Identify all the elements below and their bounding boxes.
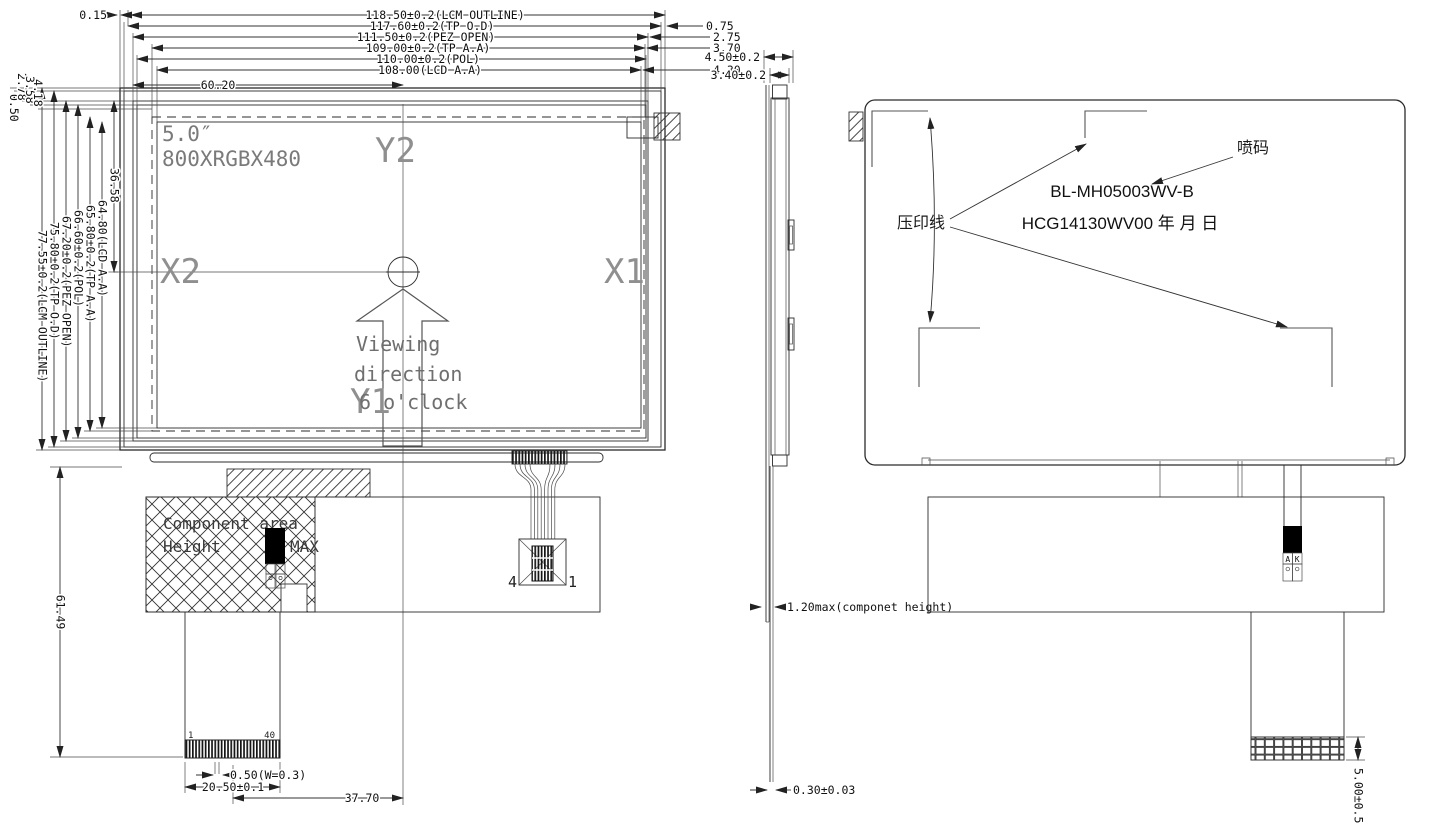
dim-lcm-height: 77.55±0.2(LCM OUTLINE) (36, 230, 50, 382)
model-number: BL-MH05003WV-B (1050, 182, 1194, 201)
ak-pin-k-hole (1295, 567, 1299, 571)
pin40-label: 40 (264, 731, 275, 741)
panel-size-label: 5.0″ (162, 122, 213, 146)
ak-pin-k (1293, 564, 1303, 581)
side-bottom-cap (773, 455, 788, 466)
side-top-cap (773, 85, 788, 99)
dim-6020: 60.20 (201, 78, 236, 92)
connector-40pin (185, 740, 280, 758)
fpc-bond-pad (512, 451, 567, 464)
dim-015: 0.15 (79, 8, 107, 22)
ak-label-a: A (1285, 555, 1290, 564)
component-area-text2a: Height (163, 537, 221, 556)
axis-x1-label: X1 (604, 252, 645, 292)
back-bottom-notch-left (922, 458, 930, 465)
side-extension-lines (764, 50, 793, 83)
dim-500: 5.00±0.5 (1352, 768, 1366, 823)
back-side-tab (849, 112, 863, 141)
ak-pin-a (1283, 564, 1293, 581)
model-date-line: HCG14130WV00 年 月 日 (1022, 214, 1219, 233)
inkjet-label: 喷码 (1237, 138, 1269, 157)
fpc4-label-left: 4 (508, 573, 517, 591)
dim-6149: 61.49 (54, 595, 68, 630)
side-view: 4.50±0.2 3.40±0.2 1.20max(componet heigh… (705, 50, 954, 797)
dim-030: 0.30±0.03 (793, 783, 855, 797)
dim-lcdaa-width: 108.00(LCD A.A) (378, 63, 482, 77)
corner-mark-br (1280, 328, 1332, 387)
backlight-connector-back (1283, 526, 1302, 553)
fpc4-label-right: 1 (568, 573, 577, 591)
ak-label-k: K (1295, 555, 1300, 564)
corner-mark-bl (919, 328, 980, 387)
side-dim-lines (750, 57, 793, 790)
inkjet-leader (1152, 157, 1233, 184)
axis-x2-label: X2 (160, 252, 201, 292)
pin1-label: 1 (188, 731, 193, 741)
stiffener (1251, 737, 1344, 760)
back-view: 压印线 喷码 BL-MH05003WV-B HCG14130WV00 年 月 日… (849, 100, 1405, 823)
right-offset-arrows (643, 26, 710, 70)
dim-lcdaa-height: 64.80(LCD A.A) (96, 200, 110, 297)
dim-tpaa-height: 65.80±0.2(TP A.A) (84, 205, 98, 323)
axis-y2-label: Y2 (375, 131, 416, 171)
drawing-canvas: 5.0″ 800XRGBX480 Y2 Y1 X2 X1 Viewing dir… (0, 0, 1446, 828)
lcm-mechanical-drawing: 5.0″ 800XRGBX480 Y2 Y1 X2 X1 Viewing dir… (0, 0, 1446, 828)
dim-pez-height: 67.20±0.2(PEZ OPEN) (60, 216, 74, 348)
front-view: 5.0″ 800XRGBX480 Y2 Y1 X2 X1 Viewing dir… (114, 88, 680, 805)
stamp-leader-bottom (950, 227, 1287, 327)
viewing-line2: direction (354, 362, 462, 386)
top-right-hatch-pad (654, 113, 680, 140)
side-clip-1-inner (790, 226, 793, 244)
back-bottom-notch-right (1386, 458, 1394, 465)
dim-pol-height: 66.60±0.2(POL) (72, 210, 86, 307)
ak-pin-a-hole (1286, 567, 1290, 571)
dim-3770: 37.70 (345, 791, 380, 805)
dim-conn-width: 20.50±0.1 (202, 780, 264, 794)
viewing-line3: 6 o'clock (359, 390, 467, 414)
backlight-connector-front (265, 528, 285, 564)
hatched-strip (227, 469, 370, 497)
dim-3658: 36.58 (108, 168, 122, 203)
back-fpc-wide-region (928, 497, 1384, 612)
component-area-text2b: MAX (290, 537, 319, 556)
dim-tpod-height: 75.80±0.2(TP O.D) (48, 222, 62, 340)
back-outline (865, 100, 1405, 465)
offset-418: 4.18 (31, 79, 45, 107)
stamp-line-label: 压印线 (897, 213, 945, 232)
dim-450: 4.50±0.2 (705, 50, 760, 64)
dim-340: 3.40±0.2 (711, 68, 766, 82)
panel-resolution-label: 800XRGBX480 (162, 147, 301, 171)
corner-mark-tm (1085, 111, 1147, 138)
fpc-4pin-connector (519, 539, 566, 585)
fpc-cable (515, 464, 565, 539)
side-clip-2-inner (790, 324, 793, 344)
corner-mark-tl (872, 111, 928, 167)
top-right-pad (627, 117, 658, 138)
viewing-line1: Viewing (356, 332, 440, 356)
